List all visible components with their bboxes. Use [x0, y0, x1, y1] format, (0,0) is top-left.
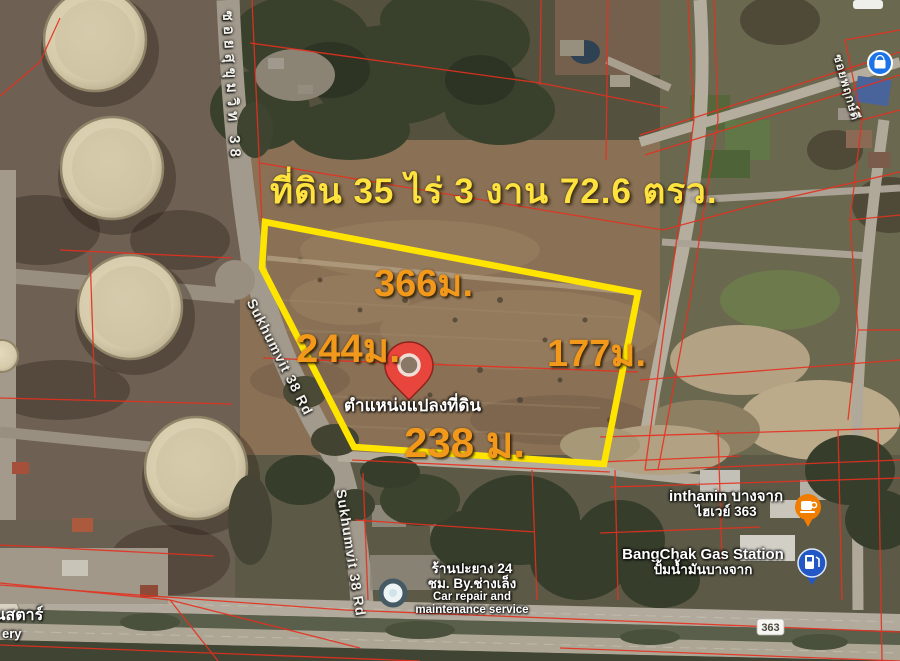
store-dot-icon — [389, 589, 397, 597]
map-canvas: 363 ที่ดิน 35 ไร่ — [0, 0, 900, 661]
car-repair-marker[interactable] — [381, 581, 405, 605]
coffee-cup-icon — [800, 501, 817, 513]
map-card-edge — [853, 0, 883, 9]
satellite-map: 363 — [0, 0, 900, 661]
route-shield-363: 363 — [757, 619, 784, 635]
route-shield-number: 363 — [761, 622, 779, 634]
shop-marker-top-right[interactable] — [868, 51, 892, 75]
